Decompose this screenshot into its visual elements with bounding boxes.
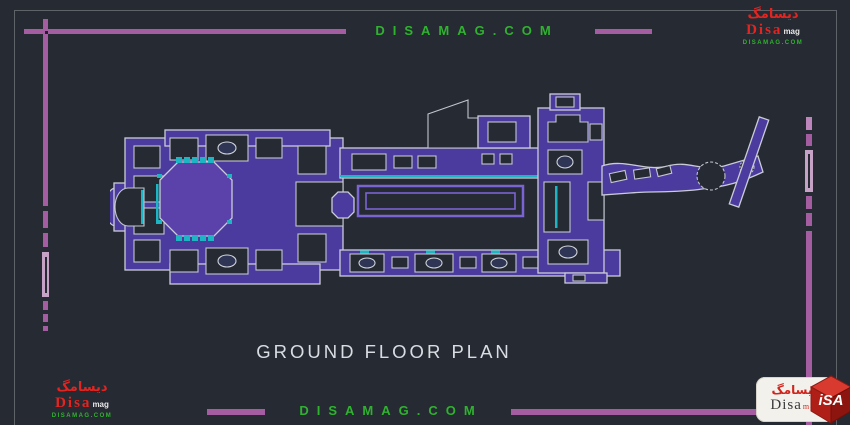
- frame-left-dash-4: [43, 314, 48, 322]
- logo-site-text: DISAMAG.COM: [45, 413, 119, 419]
- frame-corner-cross-dot: [45, 31, 48, 34]
- frame-right-dash-3: [806, 196, 812, 209]
- frame-left-light-core: [45, 257, 47, 293]
- logo-persian-text: دیسامگ: [45, 381, 119, 394]
- disamag-logo-bottom-right: دیسامگ Disamag iSA: [756, 374, 850, 425]
- frame-right-light-core: [808, 154, 810, 188]
- watermark-bottom: DISAMAG.COM: [276, 403, 506, 418]
- left-wing: [110, 130, 343, 284]
- logo-site-text: DISAMAG.COM: [736, 40, 810, 46]
- frame-right-dash-2: [806, 134, 812, 146]
- watermark-top: DISAMAG.COM: [352, 23, 582, 38]
- frame-left-dash-3: [43, 301, 48, 310]
- frame-right-dash-4: [806, 213, 812, 226]
- frame-left-line: [43, 19, 48, 206]
- disamag-logo-bottom-left: دیسامگ Disamag DISAMAG.COM: [45, 381, 119, 419]
- svg-text:iSA: iSA: [818, 392, 843, 409]
- drawing-title: GROUND FLOOR PLAN: [234, 341, 534, 363]
- frame-left-dash-1: [43, 211, 48, 228]
- frame-top-line-left: [24, 29, 346, 34]
- frame-top-dash-right: [595, 29, 652, 34]
- frame-left-dash-5: [43, 326, 48, 331]
- frame-bottom-dash-left: [207, 409, 265, 415]
- right-wing: [538, 94, 769, 283]
- cad-drawing-page: DISAMAG.COM DISAMAG.COM GROUND FLOOR PLA…: [0, 0, 850, 425]
- frame-left-dash-2: [43, 233, 48, 247]
- logo-wordmark: Disamag: [736, 22, 810, 38]
- logo-wordmark: Disamag: [45, 395, 119, 411]
- logo-persian-text: دیسامگ: [736, 8, 810, 21]
- cube-logo-icon: iSA: [808, 374, 850, 425]
- disamag-logo-top-right: دیسامگ Disamag DISAMAG.COM: [736, 8, 810, 46]
- frame-right-dash-1: [806, 117, 812, 130]
- floor-plan-drawing: [110, 88, 770, 303]
